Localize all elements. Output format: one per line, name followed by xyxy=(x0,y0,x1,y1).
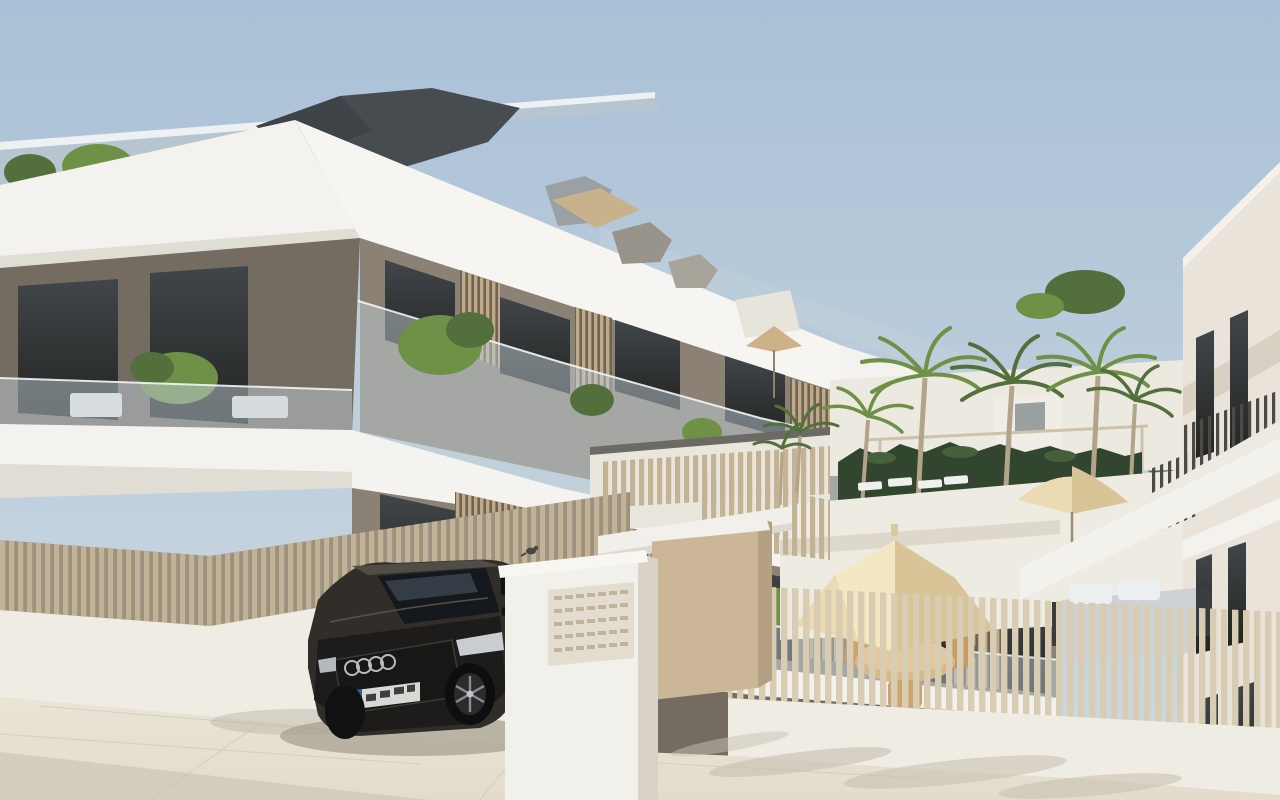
car xyxy=(308,560,514,739)
background-house-window xyxy=(1015,402,1045,434)
mailbox-pillar-side xyxy=(638,553,658,800)
gate-pillar-side xyxy=(758,518,772,688)
slab2-left-face xyxy=(0,424,352,472)
gate-pillar xyxy=(652,518,758,700)
mailbox-pillar xyxy=(498,550,658,800)
architectural-render-image xyxy=(0,0,1280,800)
render-canvas xyxy=(0,0,1280,800)
